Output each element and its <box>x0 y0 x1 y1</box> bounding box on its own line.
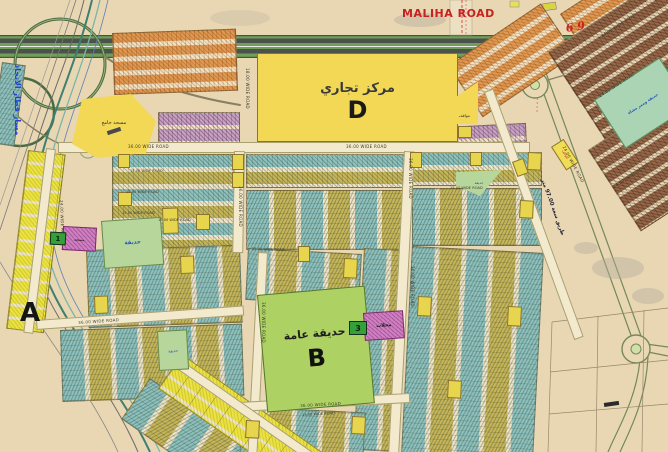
commercial-center-block: مركز تجاري D <box>257 53 458 142</box>
grand-mosque-label: مسجد جامع <box>102 120 127 126</box>
region-label-a: A <box>20 298 40 328</box>
yellow-plot <box>343 258 358 279</box>
road-36-label: 36.00 WIDE ROAD <box>128 144 169 149</box>
marker-3: 3 <box>349 321 367 335</box>
road-15-label: 15.00 WIDE ROAD <box>158 218 191 222</box>
mosque-icon <box>107 126 122 134</box>
region-label-b: B <box>306 343 327 372</box>
yellow-plot <box>118 192 132 206</box>
road-15-label: 15.00 WIDE ROAD <box>450 186 483 190</box>
small-structure <box>604 401 619 407</box>
yellow-plot <box>118 154 130 168</box>
road-36-label: 36.00 WIDE ROAD <box>346 144 387 149</box>
yellow-plot <box>245 420 260 439</box>
region-label-d: D <box>348 96 368 124</box>
yellow-plot <box>458 126 472 138</box>
strip-plots-lower-right <box>401 246 544 452</box>
master-plan-map: مركز تجاري D مسجد جامع مواقف مواقف حديقة… <box>0 0 668 452</box>
road-36-label: 36.00 WIDE ROAD <box>410 266 415 307</box>
vacant-parcels <box>548 308 668 452</box>
park-west-label: حديقة <box>124 239 141 246</box>
yellow-plot <box>298 246 310 262</box>
park-walkway-label: حديقة وممر مشاة <box>626 91 658 114</box>
park-small-block: حديقة <box>157 329 189 371</box>
shops-label: محلات <box>376 322 392 329</box>
parking-label: مواقف <box>459 113 470 118</box>
park-west-block: حديقة <box>101 217 164 269</box>
road-36-label: 36.00 WIDE ROAD <box>261 302 266 343</box>
yellow-plot <box>527 152 542 171</box>
marker-3-number: 3 <box>355 324 361 333</box>
park-triangle-label: حديقة <box>475 181 484 185</box>
purple-plots-northwest <box>158 112 240 146</box>
yellow-plot <box>94 296 109 314</box>
road-36-label: 36.00 WIDE ROAD <box>238 186 243 227</box>
road-15-label: 15.00 WIDE ROAD <box>126 190 159 194</box>
orange-plots-northwest <box>112 29 238 95</box>
commercial-center-label: مركز تجاري <box>320 81 395 96</box>
public-park-block: حديقة عامة B <box>257 286 375 413</box>
yellow-plot <box>507 306 522 327</box>
road-15-label: 15.00 WIDE ROAD <box>130 169 163 173</box>
strip-plots-upper-mid <box>246 190 406 250</box>
public-park-label: حديقة عامة <box>283 324 346 342</box>
shops-block: محلات <box>363 310 405 341</box>
row-plots-upper-mid <box>246 154 406 188</box>
yellow-plot <box>447 380 462 399</box>
rail-note-label: مسار قطار الاتحاد <box>13 64 22 136</box>
yellow-plot <box>519 200 534 219</box>
marker-1-number: 1 <box>55 234 60 242</box>
yellow-plot <box>417 296 432 317</box>
red-annotation: 6 9 <box>565 19 586 35</box>
road-15-label: 15.00 WIDE ROAD <box>122 211 155 215</box>
road-36-label: 36.00 WIDE ROAD <box>408 158 413 199</box>
yellow-plot <box>470 152 482 166</box>
yellow-plot <box>351 416 366 435</box>
mosque-small-block: مسجد <box>62 226 97 252</box>
park-small-label: حديقة <box>168 347 178 353</box>
road-18-label: 18.00 WIDE ROAD <box>245 68 250 109</box>
mosque-small-label: مسجد <box>74 236 85 242</box>
yellow-plot <box>196 214 210 230</box>
marker-1: 1 <box>50 232 67 246</box>
yellow-plot <box>180 256 195 274</box>
yellow-plot <box>232 154 244 170</box>
maliha-road-label: MALIHA ROAD <box>402 7 495 20</box>
